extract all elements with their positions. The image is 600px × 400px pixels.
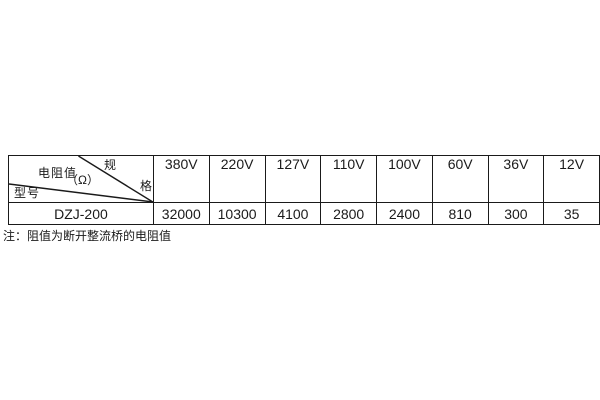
resistance-value-cell-60v: 810 <box>432 203 488 225</box>
spec-table-value-row: DZJ-200 32000 10300 4100 2800 2400 810 3… <box>9 203 600 225</box>
voltage-header-cell-36v: 36V <box>488 156 544 203</box>
resistance-value-cell-127v: 4100 <box>265 203 321 225</box>
spec-label-char-bottom: 格 <box>140 179 152 193</box>
spec-table-header-row: 规 格 电阻值 （Ω） 型号 380V 220V 127V 110V 100V … <box>9 156 600 203</box>
voltage-header-cell-127v: 127V <box>265 156 321 203</box>
resistance-value-cell-380v: 32000 <box>153 203 209 225</box>
resistance-value-cell-220v: 10300 <box>209 203 265 225</box>
voltage-header-cell-60v: 60V <box>432 156 488 203</box>
model-cell: DZJ-200 <box>9 203 154 225</box>
resistance-value-cell-100v: 2400 <box>377 203 433 225</box>
page: 规 格 电阻值 （Ω） 型号 380V 220V 127V 110V 100V … <box>0 0 600 400</box>
voltage-header-cell-110v: 110V <box>321 156 377 203</box>
note-text: 注：阻值为断开整流桥的电阻值 <box>3 228 171 244</box>
resistance-value-cell-36v: 300 <box>488 203 544 225</box>
voltage-header-cell-100v: 100V <box>377 156 433 203</box>
resistance-unit-label: （Ω） <box>66 173 99 187</box>
resistance-value-cell-110v: 2800 <box>321 203 377 225</box>
corner-header-cell: 规 格 电阻值 （Ω） 型号 <box>9 156 154 203</box>
voltage-header-cell-380v: 380V <box>153 156 209 203</box>
model-label: 型号 <box>14 186 40 200</box>
spec-label-char-top: 规 <box>104 158 116 172</box>
resistance-value-cell-12v: 35 <box>544 203 600 225</box>
voltage-header-cell-12v: 12V <box>544 156 600 203</box>
spec-table: 规 格 电阻值 （Ω） 型号 380V 220V 127V 110V 100V … <box>8 155 600 225</box>
voltage-header-cell-220v: 220V <box>209 156 265 203</box>
